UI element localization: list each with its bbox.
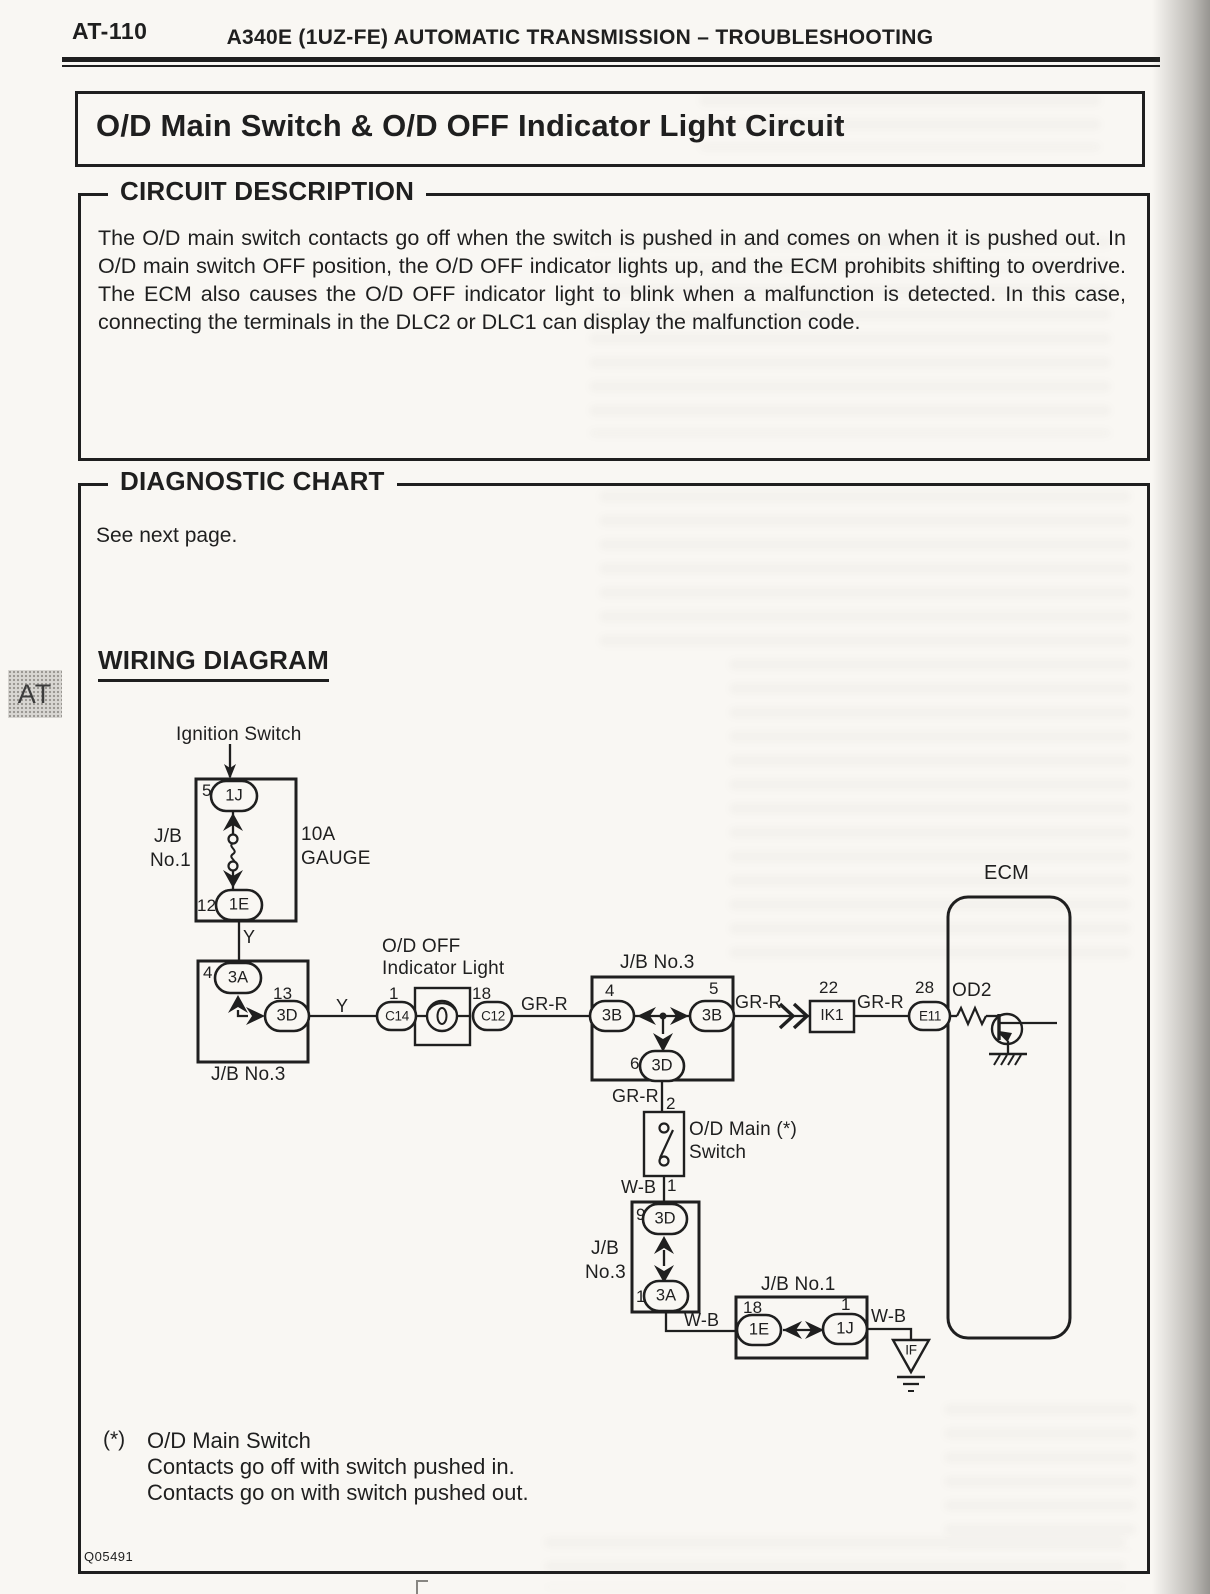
od-main-switch-label-1: O/D Main (*)	[689, 1119, 797, 1141]
pin-3d-lower-label: 3D	[654, 1210, 675, 1229]
pin-3a-lower-label: 3A	[656, 1287, 676, 1306]
pin-number-22: 22	[819, 978, 838, 998]
pin-3d-middle-label: 3D	[651, 1057, 672, 1076]
pin-number-12: 12	[197, 896, 216, 916]
pin-3b-right-label: 3B	[702, 1007, 722, 1026]
wire-color-grr-4: GR-R	[612, 1086, 659, 1107]
wire-color-grr-1: GR-R	[521, 994, 568, 1015]
wire-color-grr-2: GR-R	[735, 992, 782, 1013]
ignition-switch-label: Ignition Switch	[176, 724, 302, 746]
pin-1e-upper-label: 1E	[229, 896, 249, 915]
junction-dot	[660, 1013, 667, 1020]
transistor-symbol	[950, 1008, 1057, 1053]
ecm-box	[948, 897, 1070, 1338]
pin-1j-upper-label: 1J	[225, 787, 242, 806]
pin-c12-label: C12	[481, 1009, 505, 1024]
jb3-middle-name: J/B No.3	[620, 952, 694, 974]
wire-color-y-2: Y	[336, 996, 348, 1017]
pin-number-13: 13	[273, 984, 292, 1004]
manual-page: AT-110 A340E (1UZ-FE) AUTOMATIC TRANSMIS…	[0, 0, 1210, 1594]
footnote: O/D Main Switch Contacts go off with swi…	[147, 1428, 529, 1506]
pin-3a-upper-label: 3A	[228, 969, 248, 988]
jb3-lower-name-2: No.3	[585, 1262, 626, 1284]
pin-number-1-c14: 1	[389, 984, 399, 1004]
wire-color-grr-3: GR-R	[857, 992, 904, 1013]
pin-c14-label: C14	[385, 1009, 409, 1024]
footnote-line-3: Contacts go on with switch pushed out.	[147, 1480, 529, 1506]
wire-color-y-1: Y	[243, 927, 255, 948]
pin-number-1-switch: 1	[667, 1176, 677, 1196]
pin-number-4: 4	[203, 963, 213, 983]
od-main-switch-label-2: Switch	[689, 1142, 746, 1164]
pin-number-1-1j: 1	[841, 1295, 851, 1315]
pin-number-5-mid: 5	[709, 979, 719, 999]
pin-number-4-mid: 4	[605, 981, 615, 1001]
pin-number-9: 9	[636, 1205, 646, 1225]
jb3-upper-name: J/B No.3	[211, 1064, 285, 1086]
jb3-lower-name-1: J/B	[591, 1238, 619, 1260]
pin-number-18-1e: 18	[743, 1298, 762, 1318]
jb1-upper-name-2: No.1	[150, 850, 191, 872]
figure-code: Q05491	[84, 1549, 133, 1564]
footnote-line-2: Contacts go off with switch pushed in.	[147, 1454, 529, 1480]
ecm-signal-od2-label: OD2	[952, 980, 992, 1002]
ik1-connector-label: IK1	[820, 1007, 843, 1025]
flow-arrows	[228, 995, 824, 1339]
pin-3d-upper-label: 3D	[276, 1007, 297, 1026]
pin-number-18-c12: 18	[472, 984, 491, 1004]
ecm-ground-symbol	[989, 1054, 1027, 1065]
section-tab-at: AT	[8, 670, 62, 718]
footnote-marker: (*)	[103, 1428, 125, 1452]
jb1-lower-name: J/B No.1	[761, 1274, 835, 1296]
circuit-description-heading: CIRCUIT DESCRIPTION	[108, 176, 426, 207]
pin-number-28: 28	[915, 978, 934, 998]
footnote-line-1: O/D Main Switch	[147, 1428, 529, 1454]
diagnostic-chart-heading: DIAGNOSTIC CHART	[108, 466, 397, 497]
jb1-upper-name-1: J/B	[154, 826, 182, 848]
wiring-diagram	[0, 0, 1210, 1594]
if-connector-label: IF	[905, 1343, 916, 1358]
pin-number-2-switch: 2	[666, 1094, 676, 1114]
fuse-symbol	[223, 813, 243, 888]
pin-e11-label: E11	[919, 1009, 941, 1024]
od-main-switch-symbol	[644, 1112, 684, 1176]
pin-number-6: 6	[630, 1054, 640, 1074]
indicator-light-label-2: Indicator Light	[382, 958, 504, 980]
pin-number-1-3a: 1	[636, 1287, 646, 1307]
ecm-label: ECM	[984, 862, 1029, 885]
pin-number-5: 5	[202, 781, 212, 801]
fuse-rating-label: 10A	[301, 824, 335, 846]
wire-color-wb-3: W-B	[871, 1306, 906, 1327]
wire-color-wb-1: W-B	[621, 1177, 656, 1198]
indicator-light-label-1: O/D OFF	[382, 936, 460, 958]
wire-color-wb-2: W-B	[684, 1310, 719, 1331]
pin-1e-lower-label: 1E	[749, 1321, 769, 1340]
fuse-name-label: GAUGE	[301, 848, 371, 870]
pin-3b-left-label: 3B	[602, 1007, 622, 1026]
pin-1j-lower-label: 1J	[836, 1320, 853, 1339]
